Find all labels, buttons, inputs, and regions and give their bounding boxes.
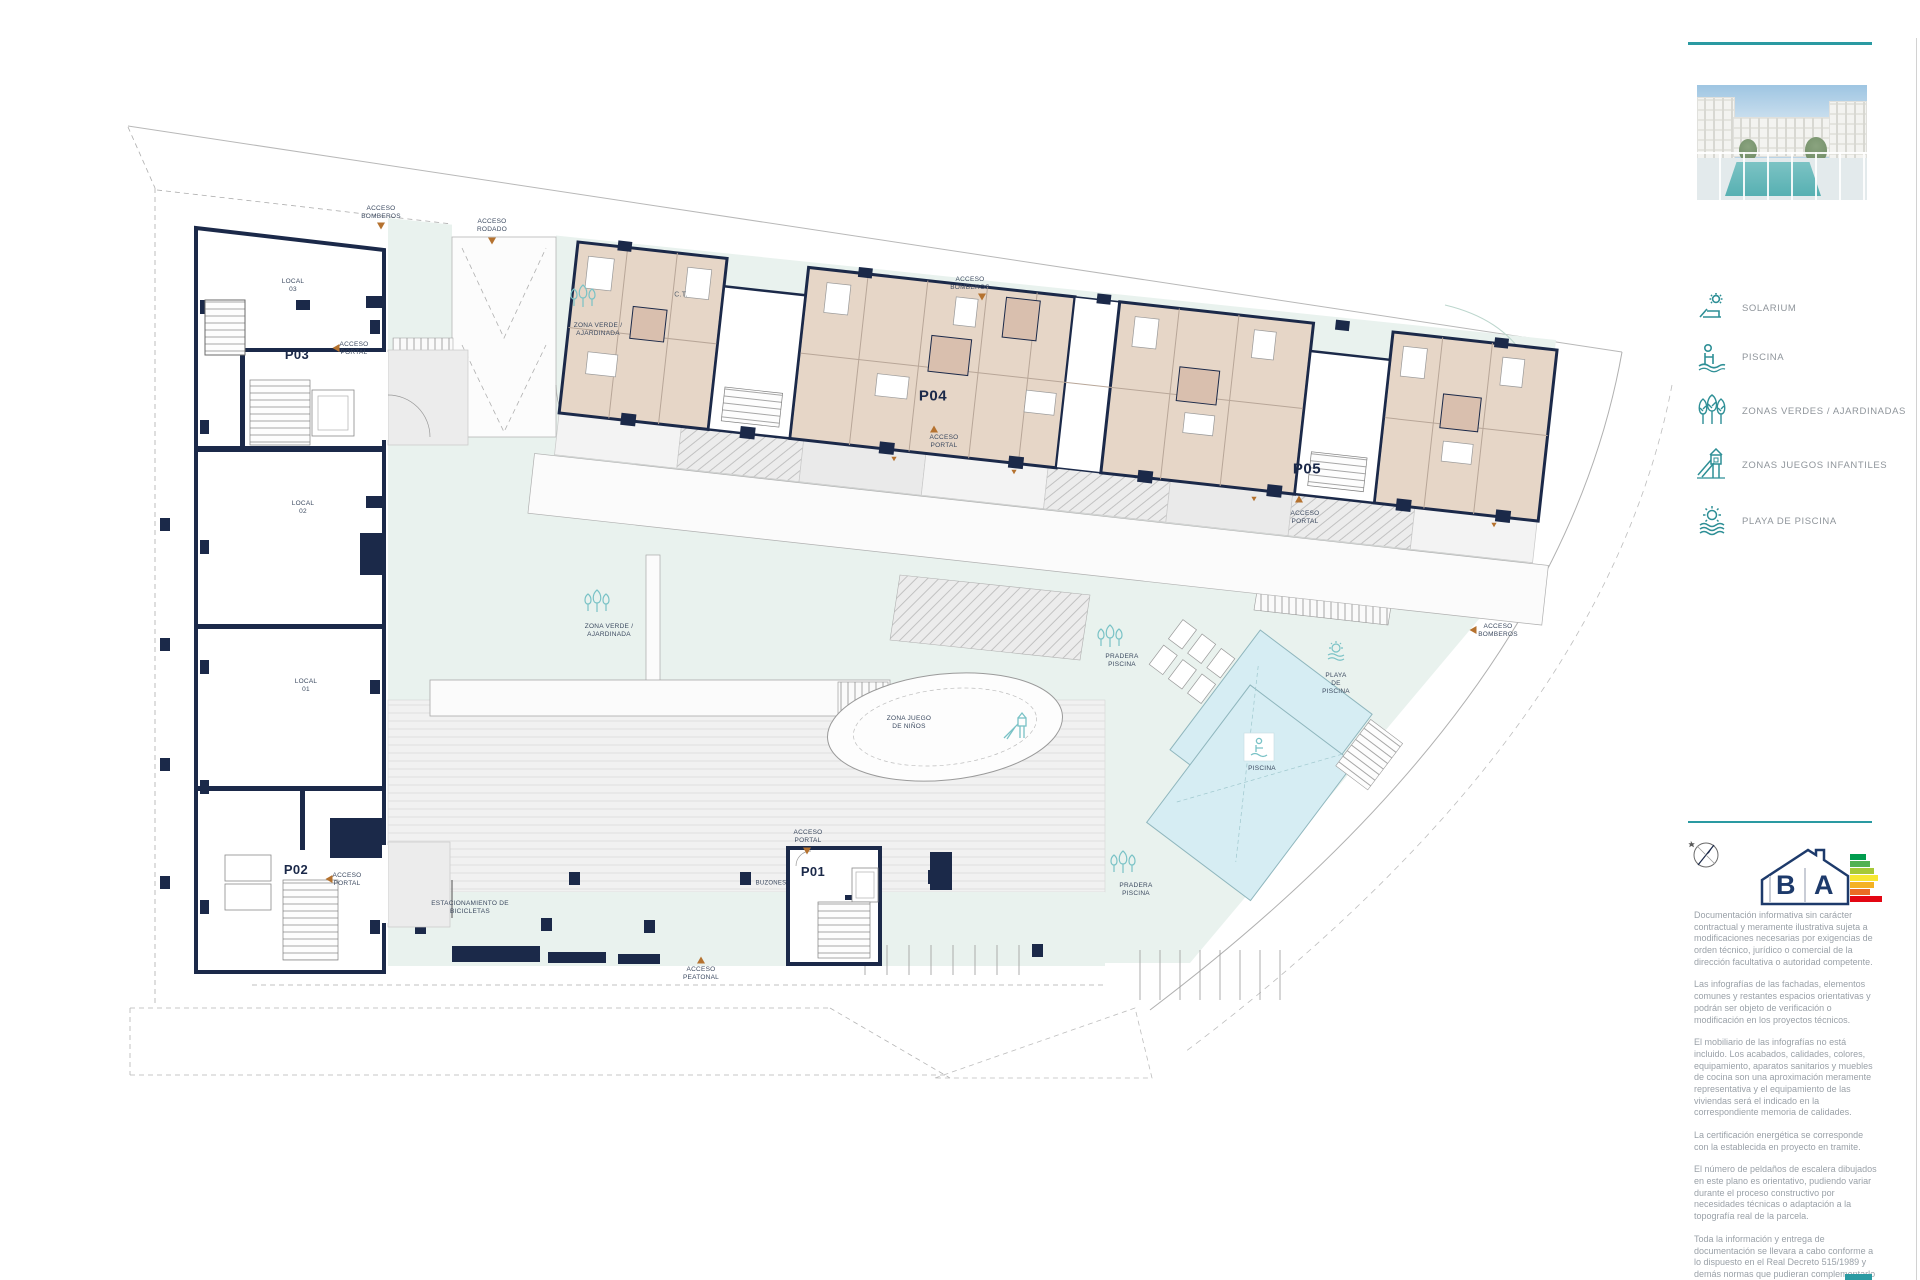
- local-03-label: LOCAL 03: [282, 278, 305, 294]
- acceso-bomberos-label: ACCESO BOMBEROS: [950, 276, 990, 292]
- footer-teal-chip: [1845, 1274, 1872, 1280]
- acceso-portal-label: ACCESO PORTAL: [930, 434, 959, 450]
- portal-p01-label: P01: [801, 864, 825, 880]
- zona-verde-label: ZONA VERDE / AJARDINADA: [585, 623, 634, 639]
- legend-label: ZONAS VERDES / AJARDINADAS: [1742, 406, 1906, 417]
- zona-verde-label: ZONA VERDE / AJARDINADA: [574, 322, 623, 338]
- legend-item-juegos: ZONAS JUEGOS INFANTILES: [1694, 447, 1887, 483]
- sun-waves-icon: [1694, 503, 1730, 539]
- acceso-portal-label: ACCESO PORTAL: [794, 829, 823, 845]
- acceso-rodado-label: ACCESO RODADO: [477, 218, 507, 234]
- legend-item-playa: PLAYA DE PISCINA: [1694, 503, 1837, 539]
- legend-item-piscina: PISCINA: [1694, 339, 1784, 375]
- access-marker: [803, 848, 811, 855]
- disclaimer-paragraph: El número de peldaños de escalera dibuja…: [1694, 1164, 1878, 1222]
- plan-labels-layer: ACCESO BOMBEROS ACCESO RODADO ZONA VERDE…: [0, 0, 1920, 1280]
- energy-letter-b: B: [1776, 870, 1796, 901]
- terrace-marker: [891, 457, 896, 462]
- acceso-portal-label: ACCESO PORTAL: [340, 341, 369, 357]
- buzones-label: BUZONES: [756, 880, 787, 888]
- pradera-piscina-label: PRADERA PISCINA: [1119, 882, 1152, 898]
- trees-icon: [1694, 393, 1730, 429]
- footer-accent-line: [1688, 821, 1872, 823]
- acceso-bomberos-label: ACCESO BOMBEROS: [361, 205, 401, 221]
- legend-label: PISCINA: [1742, 352, 1784, 363]
- local-02-label: LOCAL 02: [292, 500, 315, 516]
- north-compass-icon: [1686, 836, 1722, 872]
- project-photo: [1697, 85, 1867, 200]
- disclaimer-paragraph: La certificación energética se correspon…: [1694, 1130, 1878, 1153]
- playa-piscina-label: PLAYA DE PISCINA: [1322, 672, 1350, 696]
- access-marker: [930, 426, 938, 433]
- terrace-marker: [1491, 523, 1496, 528]
- access-marker: [333, 344, 340, 352]
- access-marker: [1295, 496, 1303, 503]
- sheet-right-border: [1916, 38, 1917, 1280]
- acceso-portal-label: ACCESO PORTAL: [1291, 510, 1320, 526]
- disclaimer-paragraph: Las infografías de las fachadas, element…: [1694, 979, 1878, 1026]
- access-marker: [377, 223, 385, 230]
- energy-letter-a: A: [1814, 870, 1834, 901]
- local-01-label: LOCAL 01: [295, 678, 318, 694]
- zona-juego-label: ZONA JUEGO DE NIÑOS: [887, 715, 931, 731]
- access-marker: [1470, 626, 1477, 634]
- access-marker: [697, 957, 705, 964]
- access-marker: [978, 294, 986, 301]
- swimmer-icon: [1694, 339, 1730, 375]
- access-marker: [326, 875, 333, 883]
- disclaimer-paragraph: El mobiliario de las infografías no está…: [1694, 1037, 1878, 1119]
- legend-item-solarium: SOLARIUM: [1694, 290, 1796, 326]
- terrace-marker: [1011, 470, 1016, 475]
- access-marker: [488, 238, 496, 245]
- piscina-label: PISCINA: [1248, 765, 1276, 773]
- energy-certificate-logo: B A: [1756, 846, 1882, 910]
- header-accent-line: [1688, 42, 1872, 45]
- legend-item-zonas-verdes: ZONAS VERDES / AJARDINADAS: [1694, 393, 1906, 429]
- portal-p05-label: P05: [1293, 461, 1321, 480]
- acceso-portal-label: ACCESO PORTAL: [333, 872, 362, 888]
- legend-label: PLAYA DE PISCINA: [1742, 516, 1837, 527]
- slide-icon: [1694, 447, 1730, 483]
- legend-label: SOLARIUM: [1742, 303, 1796, 314]
- portal-p04-label: P04: [919, 388, 947, 407]
- acceso-bomberos-label: ACCESO BOMBEROS: [1478, 623, 1518, 639]
- solarium-icon: [1694, 290, 1730, 326]
- disclaimer-paragraph: Documentación informativa sin carácter c…: [1694, 910, 1878, 968]
- terrace-marker: [1251, 497, 1256, 502]
- bike-parking-label: ESTACIONAMIENTO DE BICICLETAS: [431, 900, 509, 916]
- disclaimer: Documentación informativa sin carácter c…: [1694, 910, 1878, 1280]
- ct-label: C.T.: [674, 292, 687, 301]
- acceso-peatonal-label: ACCESO PEATONAL: [683, 966, 719, 982]
- pradera-piscina-label: PRADERA PISCINA: [1105, 653, 1138, 669]
- portal-p03-label: P03: [285, 347, 309, 363]
- photo-fence: [1697, 152, 1867, 200]
- plan-sheet: { "plan": { "labels": { "acceso_bomberos…: [0, 0, 1920, 1280]
- portal-p02-label: P02: [284, 862, 308, 878]
- legend-label: ZONAS JUEGOS INFANTILES: [1742, 460, 1887, 471]
